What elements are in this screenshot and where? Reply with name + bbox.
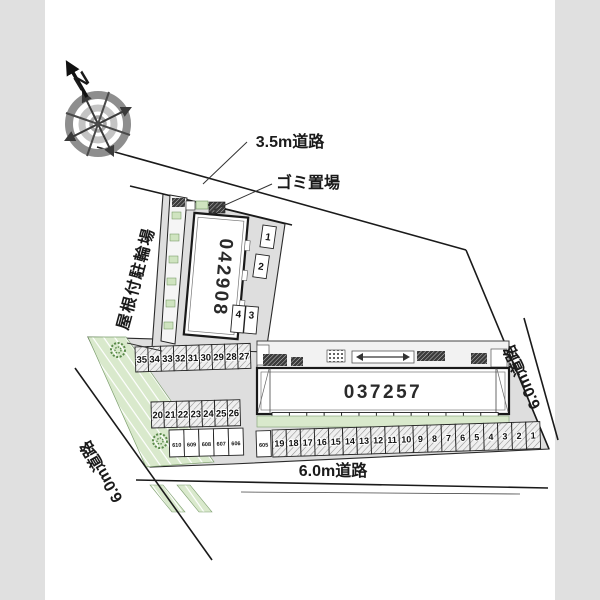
parking-space-number: 22 — [178, 409, 189, 420]
parking-space-number: 9 — [418, 434, 423, 444]
parking-space-number: 12 — [373, 435, 383, 445]
parking-space-number: 13 — [359, 436, 369, 446]
building-lower-id: 037257 — [344, 382, 422, 403]
label-road-bottom: 6.0m道路 — [299, 461, 368, 480]
parking-space-number: 21 — [165, 410, 177, 421]
left-margin-band — [0, 0, 45, 600]
elevator-block — [327, 350, 345, 362]
parking-space-number: 607 — [217, 442, 226, 448]
svg-text:ゴミ置場: ゴミ置場 — [276, 173, 340, 192]
parking-space-605: 605 — [256, 431, 271, 457]
parking-space-number: 15 — [331, 437, 341, 447]
parking-space-number: 17 — [303, 437, 313, 447]
parking-space-number: 11 — [387, 435, 397, 445]
parking-space-number: 14 — [345, 436, 355, 446]
parking-space-number: 33 — [162, 354, 173, 365]
parking-space-number: 6 — [460, 433, 465, 443]
parking-space-number: 26 — [228, 408, 239, 419]
parking-space-number: 608 — [202, 442, 211, 448]
parking-space-number: 2 — [516, 431, 521, 441]
parking-space-number: 19 — [274, 438, 284, 448]
parking-space-number: 32 — [175, 353, 186, 364]
bike-shed-roof-block — [172, 198, 185, 207]
parking-space-number: 34 — [149, 354, 161, 365]
parking-space-number: 606 — [231, 441, 240, 447]
parking-space-number: 23 — [190, 409, 201, 420]
stair-block — [471, 353, 487, 364]
site-plan-page: 042908 1 2 4 3 — [0, 0, 600, 600]
parking-space-number: 4 — [488, 432, 493, 442]
parking-space-4: 4 — [231, 305, 246, 333]
stair-block — [263, 354, 287, 366]
parking-space-number: 18 — [288, 438, 298, 448]
parking-space-number: 609 — [187, 442, 196, 448]
parking-space-number: 27 — [239, 351, 250, 362]
corridor-arrow-block — [352, 351, 414, 363]
parking-space-number: 35 — [136, 355, 148, 366]
parking-row-35-27: 353433323130292827 — [135, 343, 251, 372]
stair-block — [417, 351, 445, 361]
parking-space-number: 7 — [446, 433, 451, 443]
parking-space-number: 3 — [502, 431, 507, 441]
parking-space-number: 16 — [317, 437, 327, 447]
parking-space-number: 30 — [200, 353, 211, 364]
site-plan-map: 042908 1 2 4 3 — [0, 0, 600, 600]
parking-space-1: 1 — [260, 225, 276, 249]
svg-text:3.5m道路: 3.5m道路 — [256, 132, 325, 151]
parking-row-610-606: 610609608607606 — [169, 428, 244, 457]
parking-space-3: 3 — [244, 306, 259, 334]
parking-space-number: 31 — [188, 353, 200, 364]
parking-space-number: 605 — [259, 443, 268, 449]
parking-space-number: 8 — [432, 434, 437, 444]
parking-space-number: 10 — [401, 434, 411, 444]
building-lower: 037257 — [257, 341, 509, 414]
stair-block — [291, 357, 303, 366]
parking-space-number: 28 — [226, 352, 237, 363]
parking-space-number: 20 — [152, 410, 163, 421]
right-margin-band — [555, 0, 600, 600]
page-background — [0, 0, 600, 600]
parking-space-number: 610 — [172, 443, 181, 449]
parking-space-number: 24 — [203, 409, 215, 420]
parking-space-number: 5 — [474, 432, 479, 442]
parking-space-number: 29 — [213, 352, 224, 363]
parking-space-2: 2 — [253, 254, 270, 279]
parking-space-number: 25 — [216, 408, 228, 419]
parking-row-20-26: 20212223242526 — [151, 400, 241, 428]
parking-space-number: 1 — [530, 430, 535, 440]
